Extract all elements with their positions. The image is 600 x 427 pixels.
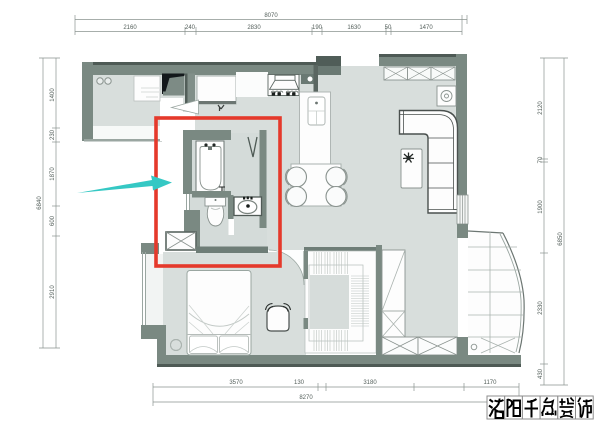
svg-text:240: 240 [185, 25, 196, 31]
svg-text:8270: 8270 [299, 395, 313, 401]
svg-text:50: 50 [385, 25, 392, 31]
svg-text:3570: 3570 [229, 380, 243, 386]
svg-text:600: 600 [50, 215, 56, 226]
svg-text:1170: 1170 [484, 380, 498, 386]
svg-text:1900: 1900 [538, 200, 544, 214]
svg-text:2330: 2330 [538, 301, 544, 315]
svg-text:2830: 2830 [247, 25, 261, 31]
svg-text:1400: 1400 [50, 88, 56, 102]
svg-text:190: 190 [312, 25, 323, 31]
svg-text:2160: 2160 [123, 25, 137, 31]
svg-text:130: 130 [294, 380, 305, 386]
svg-text:2910: 2910 [50, 285, 56, 299]
svg-text:6840: 6840 [37, 196, 43, 210]
svg-text:70: 70 [538, 156, 544, 163]
svg-text:430: 430 [538, 368, 544, 379]
svg-text:2120: 2120 [538, 101, 544, 115]
svg-text:1470: 1470 [419, 25, 433, 31]
svg-text:1870: 1870 [50, 167, 56, 181]
svg-text:6850: 6850 [558, 232, 564, 246]
svg-text:230: 230 [50, 129, 56, 140]
svg-text:1630: 1630 [347, 25, 361, 31]
svg-text:8070: 8070 [264, 13, 278, 19]
svg-text:3180: 3180 [363, 380, 377, 386]
